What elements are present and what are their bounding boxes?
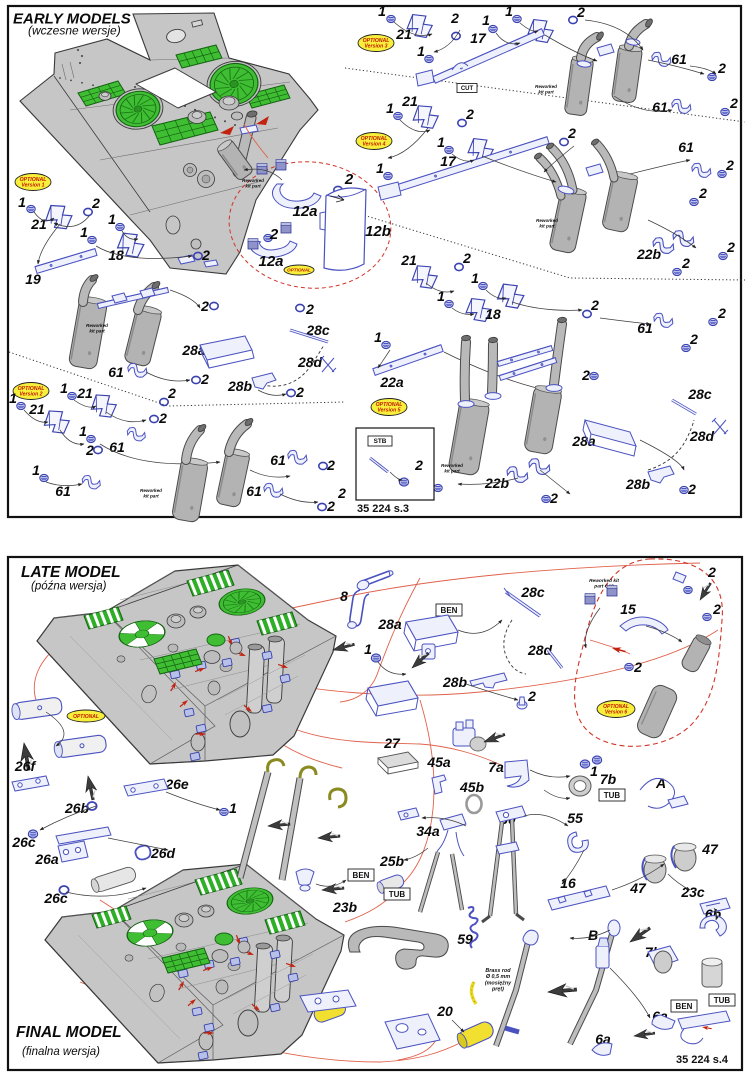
svg-text:21: 21 [400, 252, 417, 268]
svg-text:2: 2 [729, 95, 738, 111]
svg-text:7a: 7a [488, 759, 504, 775]
svg-text:1: 1 [60, 380, 68, 396]
svg-text:45a: 45a [426, 754, 451, 770]
svg-text:2: 2 [567, 125, 576, 141]
svg-text:OPTIONALVersion 2: OPTIONALVersion 2 [18, 386, 45, 398]
svg-text:26b: 26b [64, 800, 90, 816]
svg-text:2: 2 [326, 498, 335, 514]
svg-text:2: 2 [465, 106, 474, 122]
svg-text:28a: 28a [571, 433, 596, 449]
svg-text:(późna wersja): (późna wersja) [31, 581, 107, 593]
svg-text:47: 47 [701, 841, 719, 857]
svg-text:OPTIONALVersion 3: OPTIONALVersion 3 [363, 38, 390, 50]
svg-text:(wczesne wersje): (wczesne wersje) [28, 24, 121, 38]
svg-text:23b: 23b [332, 899, 358, 915]
svg-text:2: 2 [85, 442, 94, 458]
svg-text:2: 2 [576, 4, 585, 20]
svg-text:28d: 28d [689, 428, 715, 444]
svg-text:28a: 28a [377, 616, 402, 632]
svg-text:28b: 28b [442, 674, 468, 690]
svg-text:OPTIONALVersion 6: OPTIONALVersion 6 [603, 704, 629, 716]
svg-text:26c: 26c [43, 890, 68, 906]
svg-text:STB: STB [374, 438, 387, 445]
svg-text:26f: 26f [14, 758, 37, 774]
svg-text:18: 18 [485, 306, 501, 322]
svg-text:22a: 22a [379, 374, 404, 390]
svg-text:1: 1 [471, 270, 479, 286]
svg-text:1: 1 [364, 641, 372, 657]
svg-text:61: 61 [108, 364, 124, 380]
svg-text:28b: 28b [625, 476, 651, 492]
svg-text:55: 55 [567, 810, 583, 826]
svg-text:A: A [655, 775, 666, 791]
svg-text:OPTIONALVersion 1: OPTIONALVersion 1 [20, 177, 47, 189]
svg-text:8: 8 [340, 588, 348, 604]
svg-text:2: 2 [337, 485, 346, 501]
svg-text:2: 2 [717, 305, 726, 321]
svg-text:61: 61 [671, 51, 687, 67]
svg-text:7b: 7b [600, 771, 617, 787]
svg-text:TUB: TUB [604, 791, 621, 800]
svg-text:CUT: CUT [461, 86, 474, 92]
svg-text:61: 61 [678, 139, 694, 155]
svg-text:26a: 26a [34, 851, 59, 867]
svg-text:(finalna wersja): (finalna wersja) [22, 1046, 100, 1058]
svg-text:TUB: TUB [389, 890, 406, 899]
svg-text:2: 2 [200, 298, 209, 314]
svg-text:35 224 s.3: 35 224 s.3 [357, 503, 409, 515]
svg-text:22b: 22b [484, 475, 510, 491]
svg-text:28c: 28c [687, 386, 712, 402]
svg-text:1: 1 [590, 763, 598, 779]
svg-text:1: 1 [108, 211, 116, 227]
svg-text:12b: 12b [365, 223, 391, 240]
svg-text:BEN: BEN [676, 1002, 693, 1011]
svg-text:1: 1 [505, 3, 513, 19]
svg-text:61: 61 [637, 320, 653, 336]
svg-text:FINAL MODEL: FINAL MODEL [16, 1024, 122, 1041]
svg-text:21: 21 [401, 93, 418, 109]
svg-text:15: 15 [620, 601, 636, 617]
svg-text:1: 1 [374, 329, 382, 345]
svg-text:1: 1 [80, 224, 88, 240]
svg-text:25b: 25b [379, 853, 405, 869]
svg-text:21: 21 [28, 401, 45, 417]
svg-text:2: 2 [200, 371, 209, 387]
svg-text:1: 1 [386, 100, 394, 116]
svg-text:61: 61 [652, 99, 668, 115]
svg-text:2: 2 [344, 171, 354, 188]
svg-text:BEN: BEN [353, 871, 370, 880]
svg-text:LATE MODEL: LATE MODEL [21, 564, 121, 581]
svg-text:2: 2 [295, 384, 304, 400]
svg-text:28b: 28b [227, 378, 253, 394]
svg-text:2: 2 [91, 195, 100, 211]
svg-text:19: 19 [25, 271, 41, 287]
svg-text:1: 1 [376, 160, 384, 176]
svg-text:OPTIONALVersion 4: OPTIONALVersion 4 [361, 136, 388, 148]
svg-text:1: 1 [9, 390, 17, 406]
svg-text:1: 1 [437, 134, 445, 150]
svg-text:1: 1 [18, 194, 26, 210]
svg-text:22b: 22b [636, 246, 662, 262]
svg-text:61: 61 [270, 452, 286, 468]
svg-text:2: 2 [527, 688, 536, 704]
svg-text:21: 21 [395, 26, 412, 42]
svg-text:BEN: BEN [441, 606, 458, 615]
svg-text:2: 2 [633, 659, 642, 675]
svg-text:45b: 45b [459, 779, 485, 795]
svg-text:2: 2 [698, 185, 707, 201]
svg-text:2: 2 [305, 301, 314, 317]
svg-text:1: 1 [229, 800, 237, 816]
svg-text:12a: 12a [292, 203, 317, 220]
svg-text:21: 21 [76, 385, 93, 401]
svg-text:17: 17 [470, 30, 487, 46]
svg-text:2: 2 [158, 410, 167, 426]
svg-text:28c: 28c [520, 584, 545, 600]
svg-text:2: 2 [450, 10, 459, 26]
svg-text:2: 2 [581, 367, 590, 383]
svg-text:2: 2 [707, 564, 716, 580]
svg-text:2: 2 [269, 226, 279, 243]
svg-text:2: 2 [681, 255, 690, 271]
svg-text:1: 1 [378, 3, 386, 19]
svg-text:2: 2 [414, 457, 423, 473]
svg-text:20: 20 [436, 1003, 453, 1019]
svg-text:2: 2 [590, 297, 599, 313]
svg-text:26e: 26e [164, 776, 189, 792]
svg-text:OPTIONAL: OPTIONAL [73, 714, 99, 720]
svg-text:35 224 s.4: 35 224 s.4 [676, 1054, 729, 1066]
svg-text:1: 1 [32, 462, 40, 478]
svg-text:34a: 34a [416, 823, 440, 839]
svg-text:1: 1 [417, 43, 425, 59]
svg-text:OPTIONALVersion 5: OPTIONALVersion 5 [376, 402, 403, 414]
svg-text:1: 1 [482, 12, 490, 28]
svg-text:2: 2 [462, 250, 471, 266]
svg-text:OPTIONAL: OPTIONAL [287, 268, 311, 273]
svg-text:18: 18 [108, 247, 124, 263]
svg-text:12a: 12a [258, 253, 283, 270]
svg-text:2: 2 [726, 239, 735, 255]
svg-text:21: 21 [30, 216, 47, 232]
svg-text:TUB: TUB [714, 996, 731, 1005]
svg-text:2: 2 [717, 60, 726, 76]
svg-text:1: 1 [79, 423, 87, 439]
svg-text:28d: 28d [297, 354, 323, 370]
svg-text:2: 2 [712, 601, 721, 617]
svg-text:27: 27 [383, 735, 401, 751]
svg-text:2: 2 [725, 157, 734, 173]
svg-text:2: 2 [689, 331, 698, 347]
svg-text:61: 61 [246, 483, 262, 499]
svg-text:2: 2 [167, 385, 176, 401]
